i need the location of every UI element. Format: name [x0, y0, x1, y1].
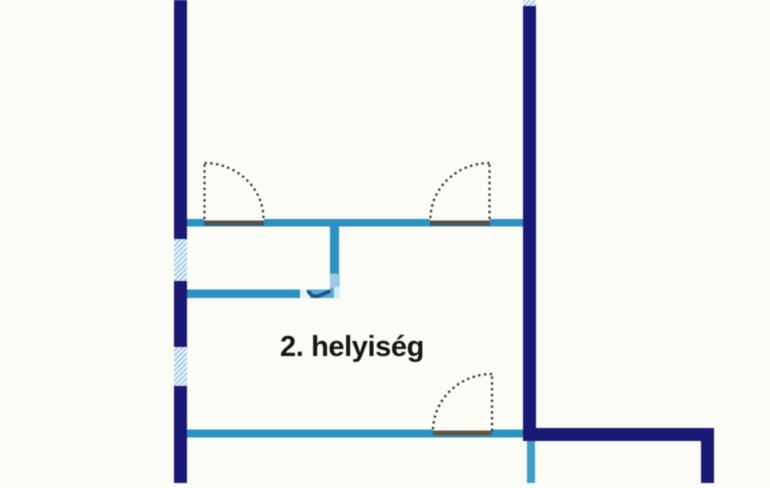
svg-text:2. helyiség: 2. helyiség	[280, 331, 424, 363]
